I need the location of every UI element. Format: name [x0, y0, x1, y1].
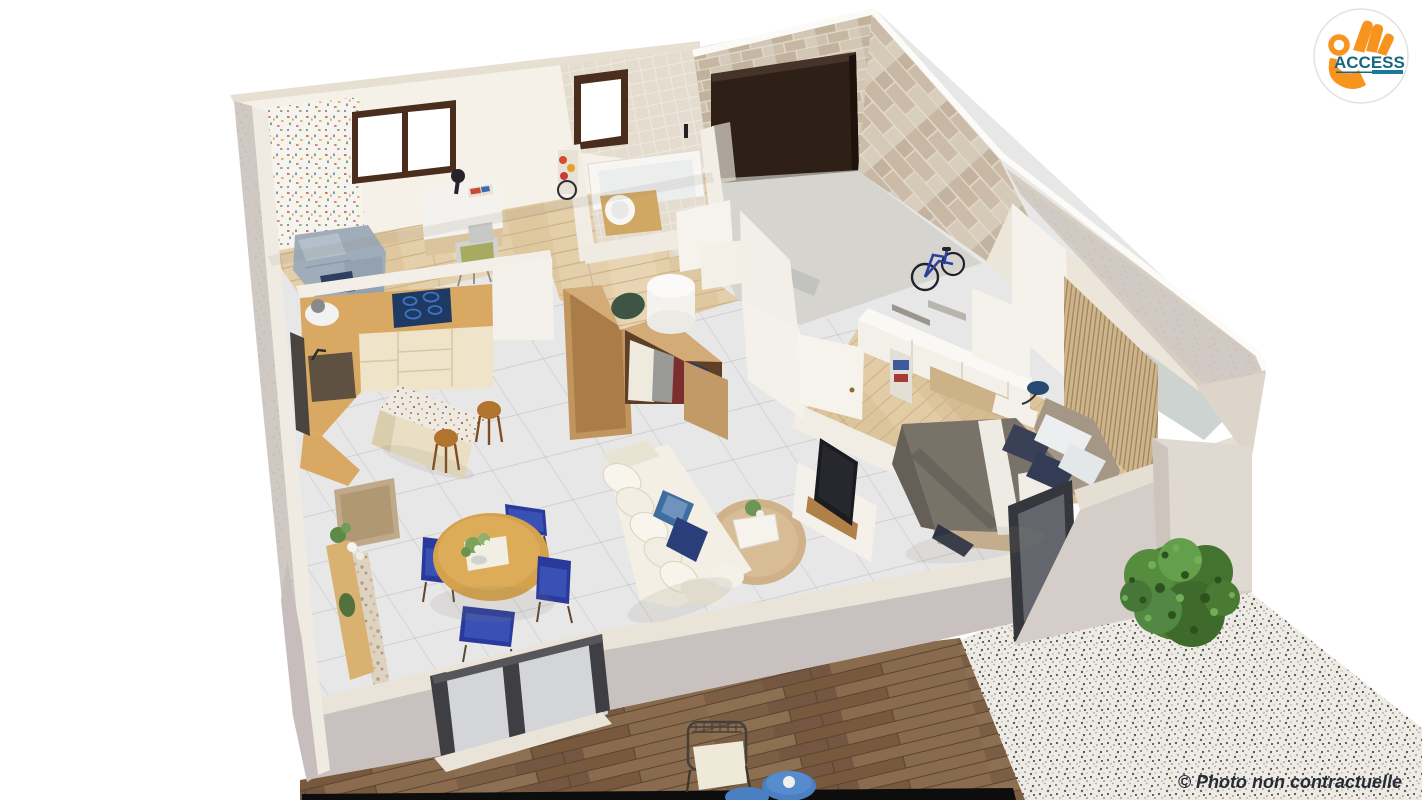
svg-text:© Photo non contractuelle: © Photo non contractuelle — [1178, 772, 1402, 792]
svg-text:ACCESS: ACCESS — [1334, 53, 1405, 72]
